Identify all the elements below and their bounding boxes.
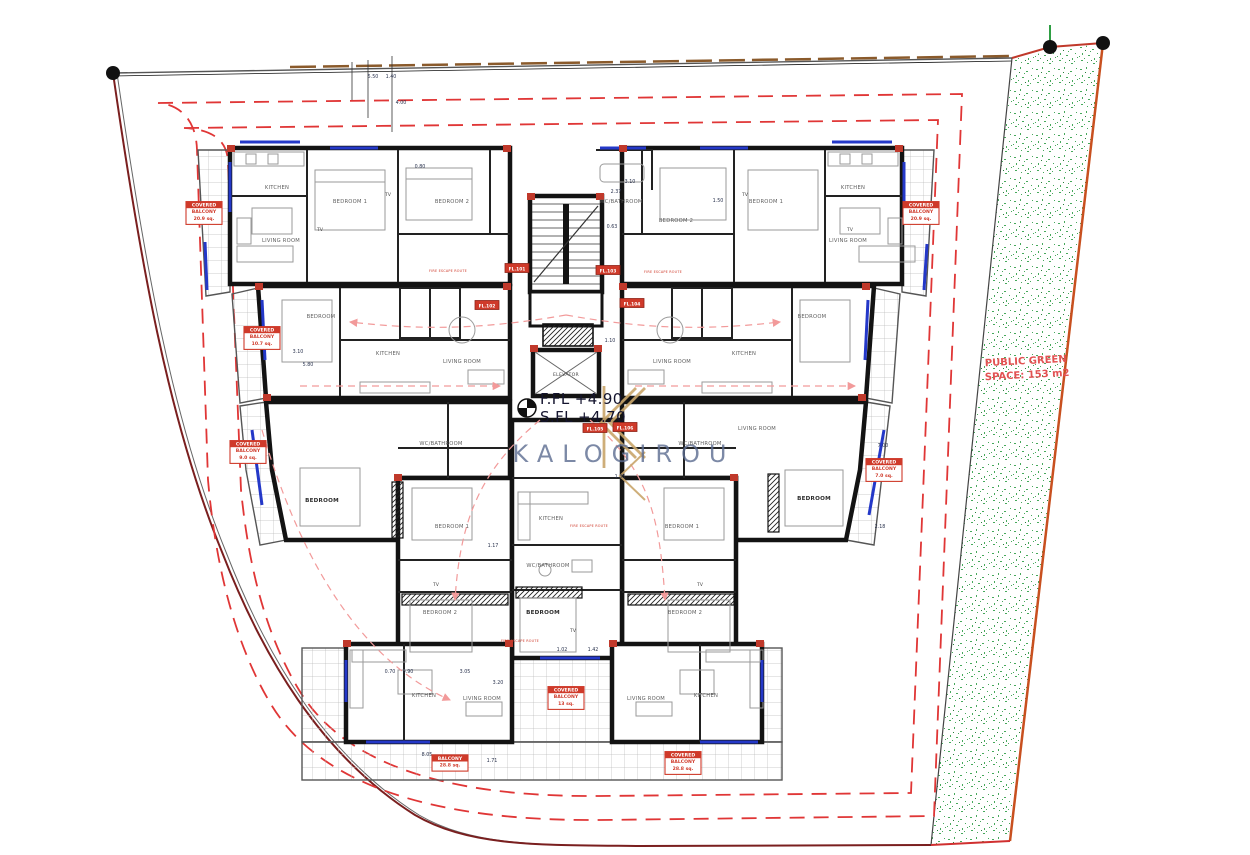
survey-point-ne1 — [1043, 40, 1057, 54]
green-area — [931, 43, 1103, 845]
balcony-tag-line: 28.8 sq. — [673, 766, 694, 772]
room-label: BEDROOM 1 — [749, 199, 783, 205]
balcony-tag-line: BALCONY — [236, 448, 261, 454]
room-label: BEDROOM — [307, 314, 336, 320]
room-label: KITCHEN — [412, 693, 436, 699]
architectural-floor-plan: PUBLIC GREEN SPACE: 153 m2 — [0, 0, 1250, 855]
room-label: BEDROOM 1 — [435, 524, 469, 530]
room-label: BEDROOM 2 — [423, 610, 457, 616]
balcony-tag-line: COVERED — [909, 203, 934, 209]
room-label: KITCHEN — [732, 351, 756, 357]
room-label: BEDROOM 2 — [659, 218, 693, 224]
balcony-tag: COVEREDBALCONY7.0 sq. — [866, 459, 902, 482]
room-label: BEDROOM 2 — [668, 610, 702, 616]
unit-tag: FL.102 — [475, 301, 499, 310]
apartment-mid-left — [258, 286, 510, 398]
balcony-tag-line: 10.7 sq. — [252, 341, 273, 347]
tv-label: TV — [569, 628, 576, 634]
balcony-tag-line: 20.9 sq. — [911, 216, 932, 222]
tv-label: TV — [316, 227, 323, 233]
unit-tag-text: FL.106 — [617, 426, 634, 432]
room-label: KITCHEN — [376, 351, 400, 357]
survey-point-nw — [106, 66, 120, 80]
room-label: LIVING ROOM — [443, 359, 481, 365]
apartment-bottom-right — [612, 644, 762, 742]
room-label: WC/BATHROOM — [526, 563, 569, 569]
survey-point-ne2 — [1096, 36, 1110, 50]
room-label: BEDROOM — [798, 314, 827, 320]
balcony-tag-line: BALCONY — [872, 466, 897, 472]
dimension-label: 2.18 — [875, 524, 886, 530]
dimension-label: 0.80 — [415, 164, 426, 170]
room-label: LIVING ROOM — [829, 238, 867, 244]
wing-bottom-left — [398, 478, 512, 658]
room-label: WC/BATHROOM — [419, 441, 462, 447]
balcony-tag-line: COVERED — [236, 442, 261, 448]
terrace-right-strip — [762, 648, 782, 742]
room-label: BEDROOM — [797, 496, 831, 502]
room-label: LIVING ROOM — [738, 426, 776, 432]
unit-tag: FL.104 — [620, 299, 644, 308]
balcony-tag: COVEREDBALCONY13 sq. — [548, 687, 584, 710]
balcony-tag-line: COVERED — [192, 203, 217, 209]
stair-landing — [530, 292, 602, 326]
dimension-label: 2.37 — [611, 189, 622, 195]
dimension-label: 1.42 — [588, 647, 599, 653]
balcony-tag-line: 20.9 sq. — [194, 216, 215, 222]
terrace-left-strip — [302, 648, 346, 742]
room-label: KITCHEN — [265, 185, 289, 191]
unit-tag-text: FL.103 — [600, 269, 617, 275]
balcony-tag-line: BALCONY — [192, 209, 217, 215]
balcony-tag-line: 9.0 sq. — [239, 455, 257, 461]
dimension-label: 3.10 — [293, 349, 304, 355]
north-boundary-line — [113, 58, 1012, 73]
retaining-wall-line — [290, 56, 1012, 67]
unit-tag: FL.106 — [613, 423, 637, 432]
shaft-hatch — [543, 324, 593, 346]
dimension-label: 7.00 — [878, 443, 889, 449]
benchmark-quadrant2 — [518, 408, 527, 417]
balcony-tag-line: COVERED — [250, 328, 275, 334]
dimension-label: 1.10 — [605, 338, 616, 344]
unit-tag: FL.101 — [505, 264, 529, 273]
unit-tag-text: FL.104 — [624, 302, 641, 308]
apartment-mid-right — [622, 286, 874, 398]
room-label: LIVING ROOM — [463, 696, 501, 702]
room-label: WC/BATHROOM — [599, 199, 642, 205]
room-label: LIVING ROOM — [653, 359, 691, 365]
balcony-tag: COVEREDBALCONY20.9 sq. — [186, 202, 222, 225]
balcony-tag: COVEREDBALCONY10.7 sq. — [244, 327, 280, 350]
room-label: KITCHEN — [694, 693, 718, 699]
dimension-label: 1.50 — [713, 198, 724, 204]
dimension-label: 0.90 — [403, 669, 414, 675]
dimension-label: 4.00 — [396, 100, 407, 106]
dimension-label: 8.05 — [422, 752, 433, 758]
unit-tag-text: FL.102 — [479, 304, 496, 310]
dimension-label: 3.10 — [625, 179, 636, 185]
dimension-ticks — [352, 56, 392, 132]
dimension-label: 3.20 — [493, 680, 504, 686]
dimension-label: 1.17 — [488, 543, 499, 549]
unit-tag-text: FL.101 — [509, 267, 526, 273]
balcony-tag: COVEREDBALCONY20.9 sq. — [903, 202, 939, 225]
tv-label: TV — [741, 192, 748, 198]
balcony-tag-line: COVERED — [872, 460, 897, 466]
tv-label: TV — [384, 192, 391, 198]
first-floor-level: F.FL +4.90 — [540, 390, 623, 408]
dimension-label: 0.70 — [385, 669, 396, 675]
balcony-tag-line: BALCONY — [250, 334, 275, 340]
dimension-label: 0.63 — [607, 224, 618, 230]
unit-tag-text: FL.105 — [587, 427, 604, 433]
room-label: KITCHEN — [841, 185, 865, 191]
balcony-tag-line: COVERED — [554, 688, 579, 694]
route-note: FIRE ESCAPE ROUTE — [570, 524, 608, 528]
balcony-tag: COVEREDBALCONY28.8 sq. — [665, 752, 701, 775]
tv-label: TV — [846, 227, 853, 233]
terrace-bottom-row — [302, 742, 782, 780]
dimension-label: 1.02 — [557, 647, 568, 653]
balcony-tag-line: 13 sq. — [558, 701, 574, 707]
route-note: FIRE ESCAPE ROUTE — [429, 269, 467, 273]
balcony-tag-line: COVERED — [671, 753, 696, 759]
wing-bottom-right — [622, 478, 736, 658]
dimension-label: 5.80 — [303, 362, 314, 368]
balcony-tag-line: BALCONY — [554, 694, 579, 700]
tv-label: TV — [432, 582, 439, 588]
route-note: FIRE ESCAPE ROUTE — [644, 270, 682, 274]
room-label: BEDROOM — [526, 610, 560, 616]
unit-tag: FL.103 — [596, 266, 620, 275]
dimension-label: 3.05 — [460, 669, 471, 675]
unit-tag: FL.105 — [583, 424, 607, 433]
dimension-label: 1.71 — [487, 758, 498, 764]
balcony-tag-line: BALCONY — [671, 759, 696, 765]
dimension-label: 1.35 — [615, 474, 626, 480]
balcony-tag-line: 7.0 sq. — [875, 473, 893, 479]
dimension-label: 5.50 — [368, 74, 379, 80]
dimension-label: 1.40 — [386, 74, 397, 80]
tv-label: TV — [696, 582, 703, 588]
floor-plan-canvas: PUBLIC GREEN SPACE: 153 m2 — [0, 0, 1250, 855]
route-note: FIRE ESCAPE ROUTE — [501, 639, 539, 643]
room-label: BEDROOM — [305, 498, 339, 504]
room-label: LIVING ROOM — [627, 696, 665, 702]
room-label: LIVING ROOM — [262, 238, 300, 244]
balcony-tag: BALCONY28.8 sq. — [432, 755, 468, 771]
balcony-tag-line: 28.8 sq. — [440, 763, 461, 769]
benchmark-quadrant1 — [527, 399, 536, 408]
balcony-tag: COVEREDBALCONY9.0 sq. — [230, 441, 266, 464]
balcony-tag-line: BALCONY — [909, 209, 934, 215]
room-label: BEDROOM 1 — [665, 524, 699, 530]
elevator-label: ELEVATOR — [553, 372, 580, 378]
room-label: BEDROOM 2 — [435, 199, 469, 205]
room-label: KITCHEN — [539, 516, 563, 522]
balcony-tag-line: BALCONY — [438, 756, 463, 762]
room-label: BEDROOM 1 — [333, 199, 367, 205]
stair-core: ELEVATOR — [530, 196, 602, 396]
room-label: WC/BATHROOM — [678, 441, 721, 447]
